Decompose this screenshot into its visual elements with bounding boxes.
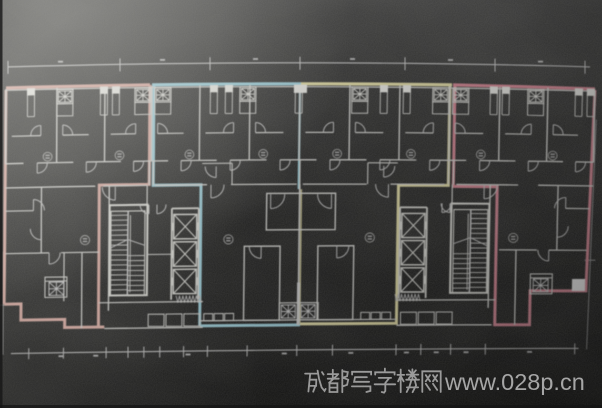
svg-text:www.028p.cn: www.028p.cn — [444, 369, 585, 395]
